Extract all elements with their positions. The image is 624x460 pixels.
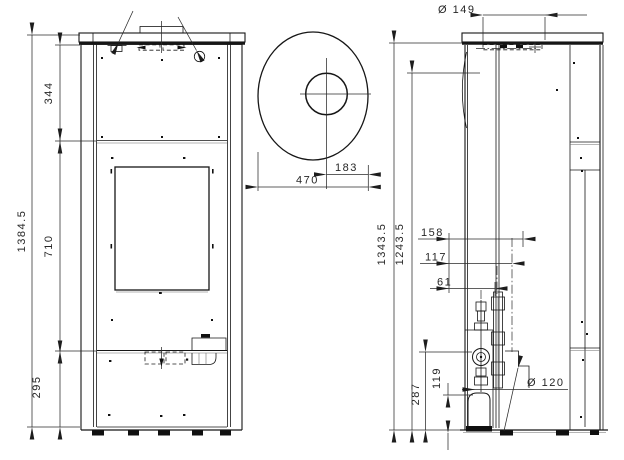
dim-side-connection-offset-2: 117 (425, 252, 447, 264)
dim-front-upper-section: 344 (43, 82, 55, 105)
side-view: Ø 149 1343.5 1243.5 158 117 61 287 (376, 4, 608, 450)
dim-side-secondary-height: 1243.5 (394, 223, 406, 266)
dim-side-total-height: 1343.5 (376, 223, 388, 266)
dim-side-drain-height: 119 (431, 367, 443, 389)
front-latch-bracket (192, 338, 226, 351)
dim-top-flue-offset: 183 (335, 162, 358, 174)
side-dimensions: Ø 149 1343.5 1243.5 158 117 61 287 (376, 4, 587, 450)
side-rear-flue-stub (505, 351, 529, 388)
front-door-glass (115, 167, 209, 290)
dim-side-rear-outlet-diameter: Ø 120 (527, 377, 564, 389)
dim-top-width: 470 (296, 175, 319, 187)
side-screw-dots (556, 62, 588, 418)
drawing-sheet: 1384.5 344 710 295 183 470 (0, 0, 624, 460)
side-feet (500, 431, 599, 436)
front-dimensions: 1384.5 344 710 295 (16, 35, 96, 427)
air-control-knob (108, 46, 127, 52)
dim-side-outlet-center-height: 287 (410, 383, 422, 406)
side-ash-canister (468, 393, 490, 427)
front-feet (92, 431, 231, 436)
sensor-boss (194, 51, 204, 61)
front-screw-dots (101, 57, 220, 417)
front-view: 1384.5 344 710 295 (16, 11, 245, 436)
side-valve-assembly (473, 266, 505, 392)
leader-sensor (178, 17, 197, 51)
side-front-curve (462, 52, 466, 128)
leader-air-knob (119, 11, 134, 43)
dim-side-connection-offset-1: 158 (421, 227, 444, 239)
dim-side-connection-offset-3: 61 (437, 277, 452, 289)
top-view: 183 470 (258, 32, 371, 191)
top-body-outline (258, 32, 368, 160)
technical-drawing-canvas: 1384.5 344 710 295 183 470 (0, 0, 624, 460)
top-dimensions: 183 470 (258, 162, 368, 187)
dim-front-overall-height: 1384.5 (16, 210, 28, 253)
dim-front-middle-section: 710 (43, 235, 55, 258)
front-top-plate (79, 33, 245, 42)
dim-side-flue-collar-diameter: Ø 149 (438, 4, 475, 16)
dim-front-lower-section: 295 (31, 376, 43, 399)
